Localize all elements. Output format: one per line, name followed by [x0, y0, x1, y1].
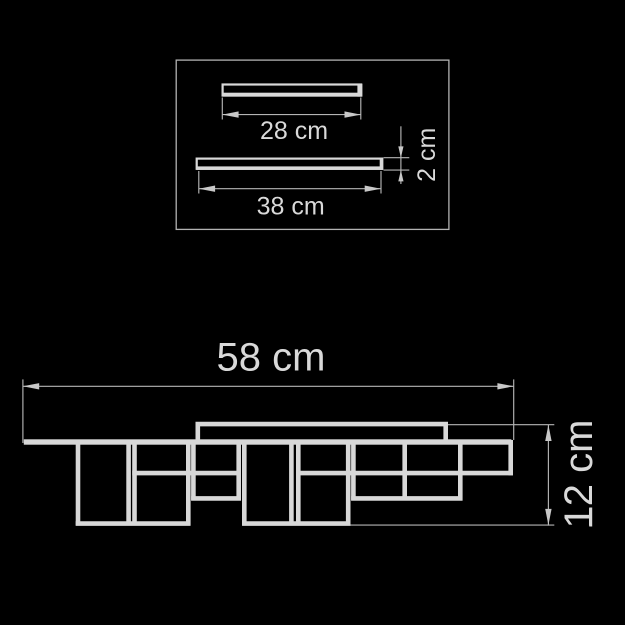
- svg-text:2 cm: 2 cm: [413, 128, 441, 182]
- svg-text:38 cm: 38 cm: [257, 192, 325, 220]
- svg-text:28 cm: 28 cm: [260, 117, 328, 145]
- svg-text:12 cm: 12 cm: [557, 420, 601, 529]
- svg-text:58 cm: 58 cm: [217, 336, 326, 380]
